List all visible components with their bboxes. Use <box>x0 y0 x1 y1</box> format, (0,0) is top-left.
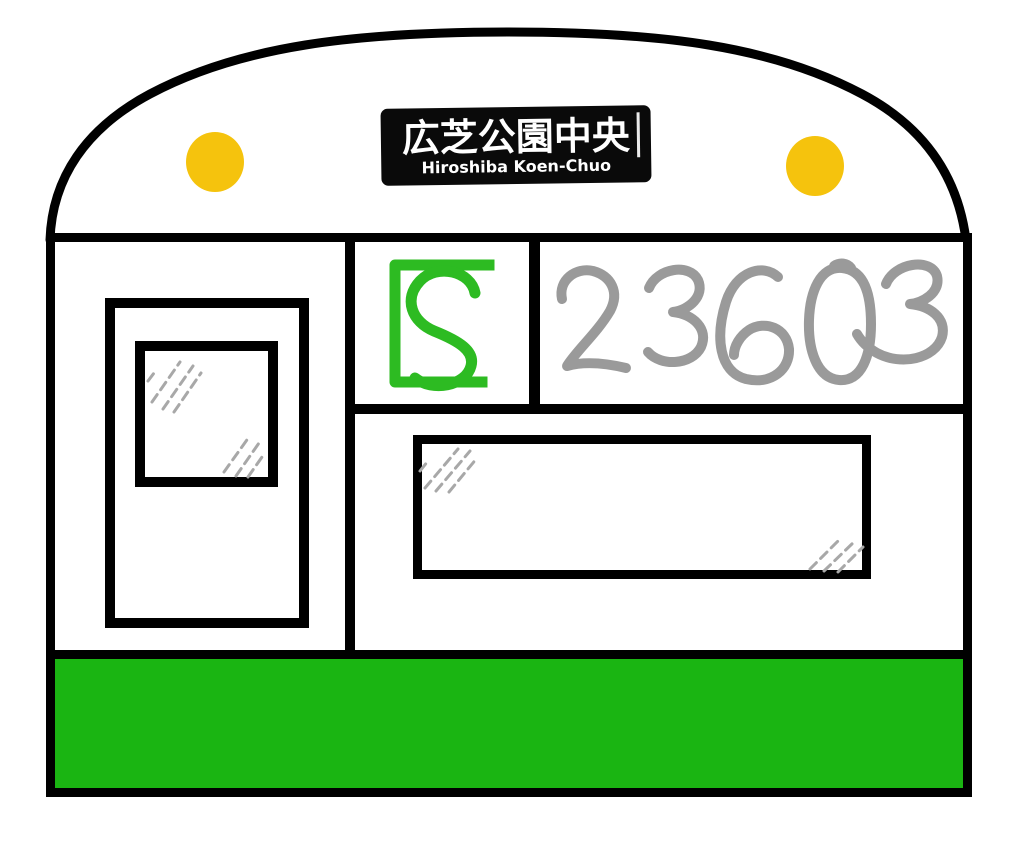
destination-text-japanese: 広芝公園中央 <box>402 115 631 158</box>
car-number-value: 23603 <box>0 0 1 1</box>
door-window <box>135 341 278 487</box>
green-stripe <box>46 650 972 797</box>
rollsign-edge-line <box>637 112 641 157</box>
logo-number-divider <box>529 240 540 414</box>
headlight-right-icon <box>786 136 844 196</box>
upper-section-divider <box>345 404 967 414</box>
windshield-window <box>413 435 871 579</box>
panel-divider-vertical <box>345 240 355 659</box>
headlight-left-icon <box>186 132 244 192</box>
destination-sign: 広芝公園中央 Hiroshiba Koen-Chuo <box>380 105 651 186</box>
logo-letter-value: S <box>0 0 1 1</box>
destination-text-romaji: Hiroshiba Koen-Chuo <box>421 156 611 176</box>
train-front-illustration: 広芝公園中央 Hiroshiba Koen-Chuo <box>0 0 1024 842</box>
